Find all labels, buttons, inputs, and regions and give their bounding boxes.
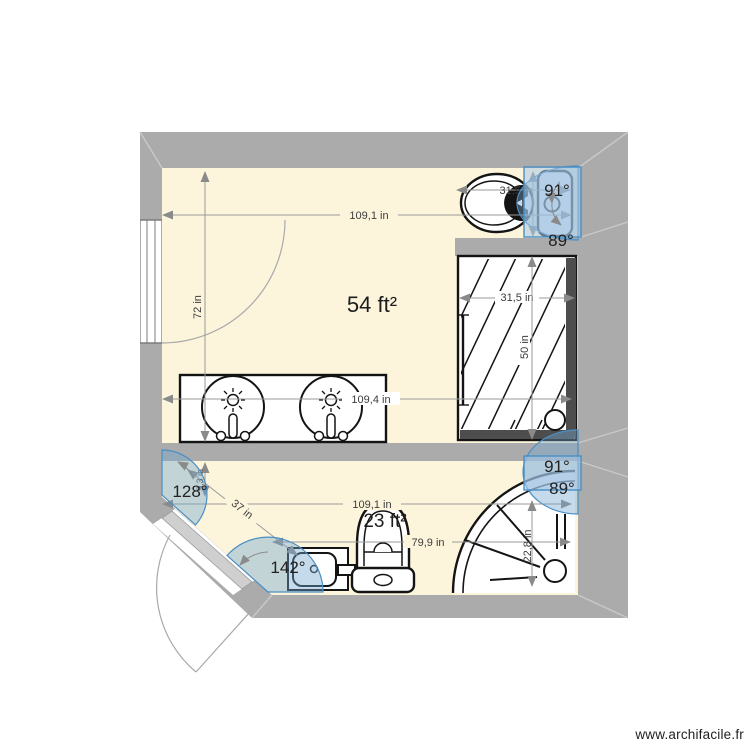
angle-label: 128°: [172, 482, 207, 501]
dim-bottom-room-width[interactable]: 109,1 in: [352, 499, 391, 511]
vanity-double-sink-icon[interactable]: [180, 375, 386, 442]
selection-box-toilet: [524, 167, 581, 237]
angle-label: 89°: [549, 479, 575, 498]
angle-label: 142°: [270, 558, 305, 577]
dim-corner-shower-depth[interactable]: 22,8 in: [522, 529, 534, 562]
dim-shower-width[interactable]: 31,5 in: [500, 292, 533, 304]
angle-label: 91°: [544, 181, 570, 200]
angle-label: 89°: [548, 231, 574, 250]
dim-vanity-span[interactable]: 109,4 in: [351, 394, 390, 406]
bottom-room-area-label: 23 ft²: [363, 511, 406, 532]
wall-bottom[interactable]: [252, 595, 628, 618]
floor-plan-canvas[interactable]: 54 ft² 23 ft² 109,1 in 72 in 31,5 in 31,…: [0, 0, 750, 750]
wall-top[interactable]: [140, 132, 628, 168]
top-room-area-label: 54 ft²: [347, 292, 397, 317]
angle-label: 91°: [544, 457, 570, 476]
wall-right[interactable]: [578, 132, 628, 618]
floor-plan-drawing[interactable]: 54 ft² 23 ft² 109,1 in 72 in 31,5 in 31,…: [0, 0, 750, 750]
dim-top-room-height[interactable]: 72 in: [192, 295, 204, 319]
dim-bottom-wall-length[interactable]: 79,9 in: [411, 537, 444, 549]
dim-top-room-width[interactable]: 109,1 in: [349, 210, 388, 222]
door-leaf: [196, 592, 268, 672]
dim-shower-depth[interactable]: 50 in: [519, 335, 531, 359]
archifacile-watermark: www.archifacile.fr: [635, 727, 744, 742]
shower-drain: [545, 410, 565, 430]
corner-shower-drain: [544, 560, 566, 582]
